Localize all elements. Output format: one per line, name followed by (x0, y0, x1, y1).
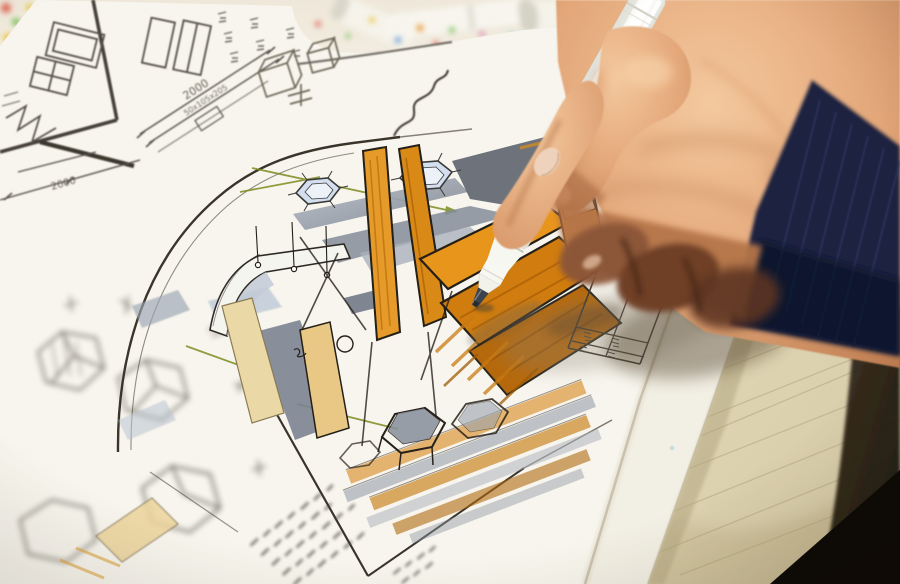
photo-hand-drawing-sketch: 2000 50x105x205 2000 (0, 0, 900, 584)
vignette-overlay (0, 0, 900, 584)
